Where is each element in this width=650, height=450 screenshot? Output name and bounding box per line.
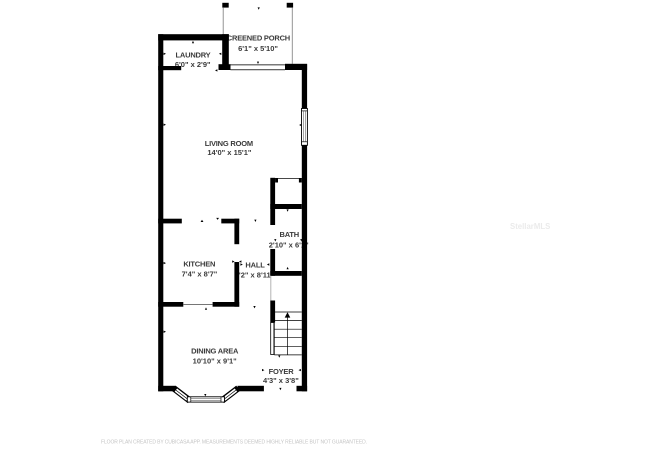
svg-text:10'10" x 9'1": 10'10" x 9'1" [193, 356, 237, 365]
svg-text:FLOOR PLAN CREATED BY CUBICASA: FLOOR PLAN CREATED BY CUBICASA APP. MEAS… [101, 439, 367, 445]
svg-text:14'0" x 15'1": 14'0" x 15'1" [207, 148, 251, 157]
svg-text:4'3" x 3'8": 4'3" x 3'8" [263, 376, 299, 385]
svg-text:LAUNDRY: LAUNDRY [176, 51, 211, 60]
svg-text:LIVING ROOM: LIVING ROOM [205, 139, 253, 148]
svg-text:HALL: HALL [245, 261, 265, 270]
svg-text:7'4" x 8'7": 7'4" x 8'7" [182, 270, 218, 279]
svg-text:KITCHEN: KITCHEN [183, 260, 215, 269]
svg-text:StellarMLS: StellarMLS [510, 222, 550, 231]
svg-text:3'2" x 8'11": 3'2" x 8'11" [235, 271, 275, 280]
svg-text:FOYER: FOYER [269, 367, 295, 376]
svg-text:6'1" x 5'10": 6'1" x 5'10" [238, 44, 278, 53]
svg-text:SCREENED PORCH: SCREENED PORCH [222, 33, 290, 42]
svg-text:DINING AREA: DINING AREA [191, 347, 239, 356]
svg-text:BATH: BATH [280, 230, 299, 239]
